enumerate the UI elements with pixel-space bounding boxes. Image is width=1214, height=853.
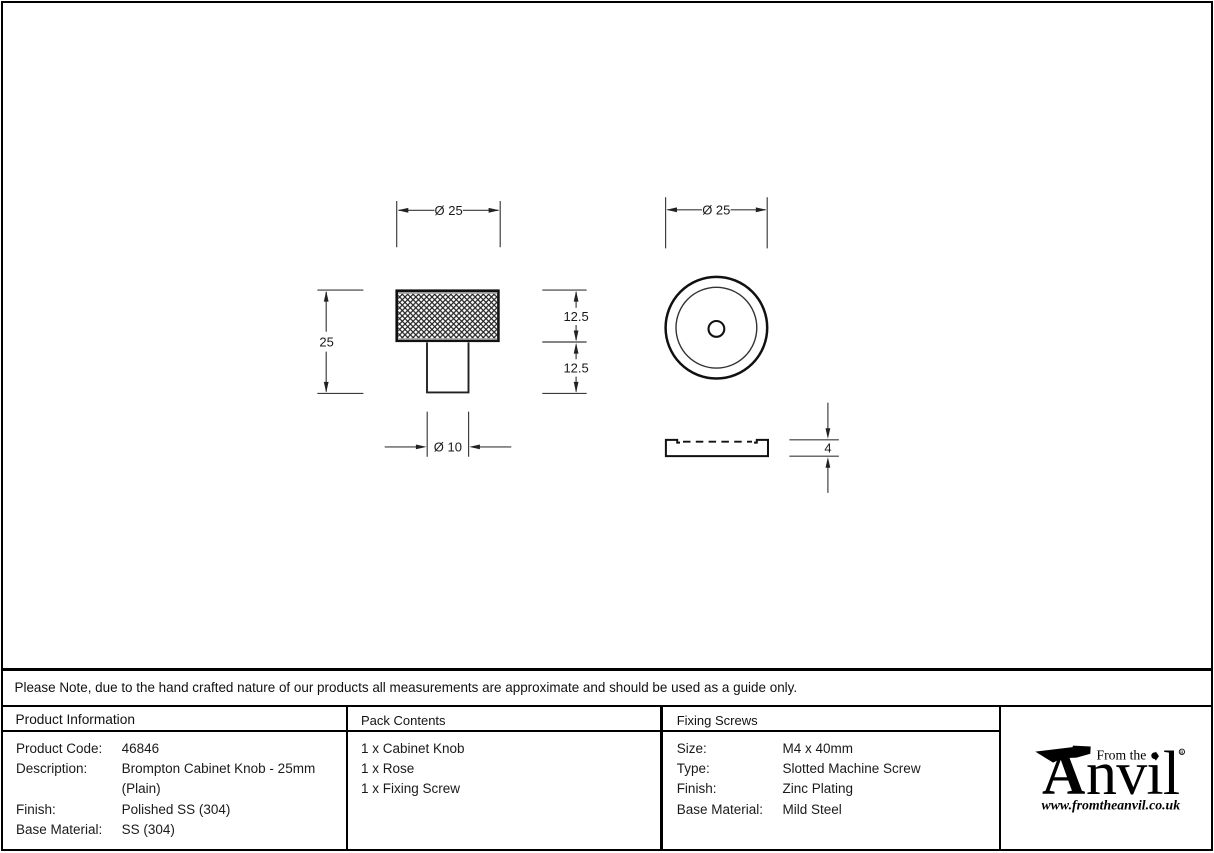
svg-text:25: 25 — [319, 334, 333, 349]
svg-text:From the: From the — [1097, 748, 1147, 763]
svg-text:Ø 25: Ø 25 — [435, 203, 463, 218]
svg-text:www.fromtheanvil.co.uk: www.fromtheanvil.co.uk — [1042, 797, 1181, 812]
svg-text:Ø 10: Ø 10 — [434, 440, 462, 455]
svg-text:4: 4 — [824, 441, 831, 456]
svg-text:Ø 25: Ø 25 — [702, 203, 730, 218]
svg-text:12.5: 12.5 — [563, 309, 588, 324]
svg-text:R: R — [1180, 750, 1184, 756]
svg-text:12.5: 12.5 — [563, 361, 588, 376]
